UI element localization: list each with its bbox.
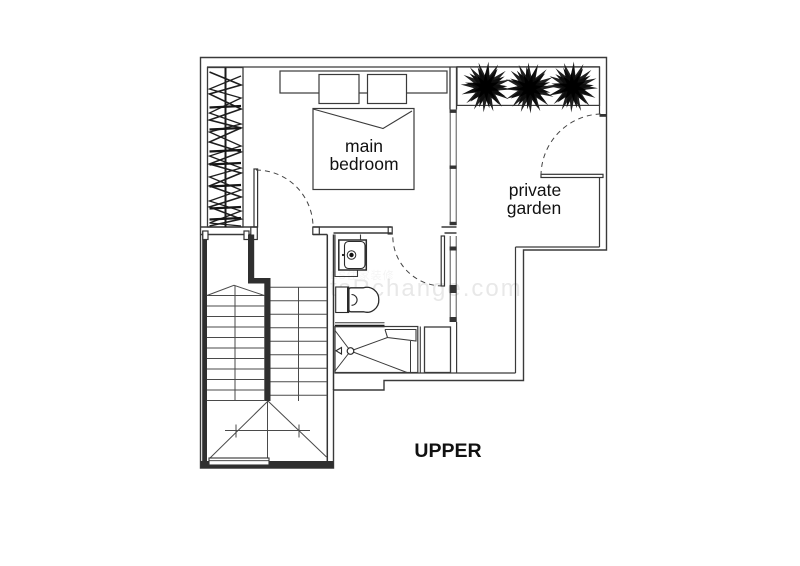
svg-text:garden: garden: [507, 198, 562, 218]
svg-text:private: private: [509, 180, 562, 200]
svg-text:UPPER: UPPER: [414, 440, 481, 462]
svg-text:main: main: [345, 136, 383, 156]
svg-text:bedroom: bedroom: [329, 154, 398, 174]
